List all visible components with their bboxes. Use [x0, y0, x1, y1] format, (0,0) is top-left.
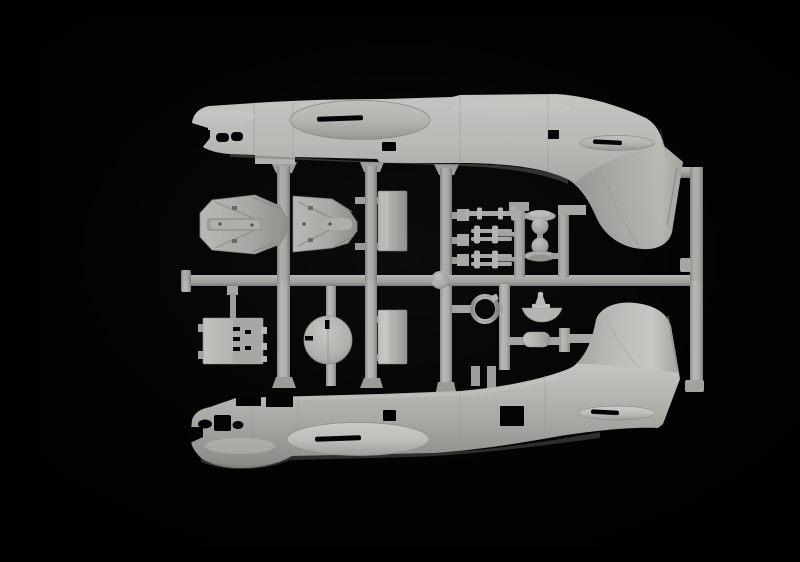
bulkhead-panel	[198, 318, 267, 364]
sprue-photo	[40, 16, 800, 546]
nose-window	[233, 421, 244, 429]
capsule-part	[523, 332, 550, 347]
bulkhead-disc	[304, 316, 352, 364]
nose-window	[214, 415, 231, 431]
photo-grain	[40, 16, 800, 281]
keel-notch	[266, 392, 293, 407]
floor-panel-lower	[378, 310, 407, 364]
door-cutout	[500, 406, 524, 426]
keel-notch	[236, 394, 261, 406]
nose-window	[198, 420, 212, 429]
fuselage-window	[383, 410, 396, 421]
